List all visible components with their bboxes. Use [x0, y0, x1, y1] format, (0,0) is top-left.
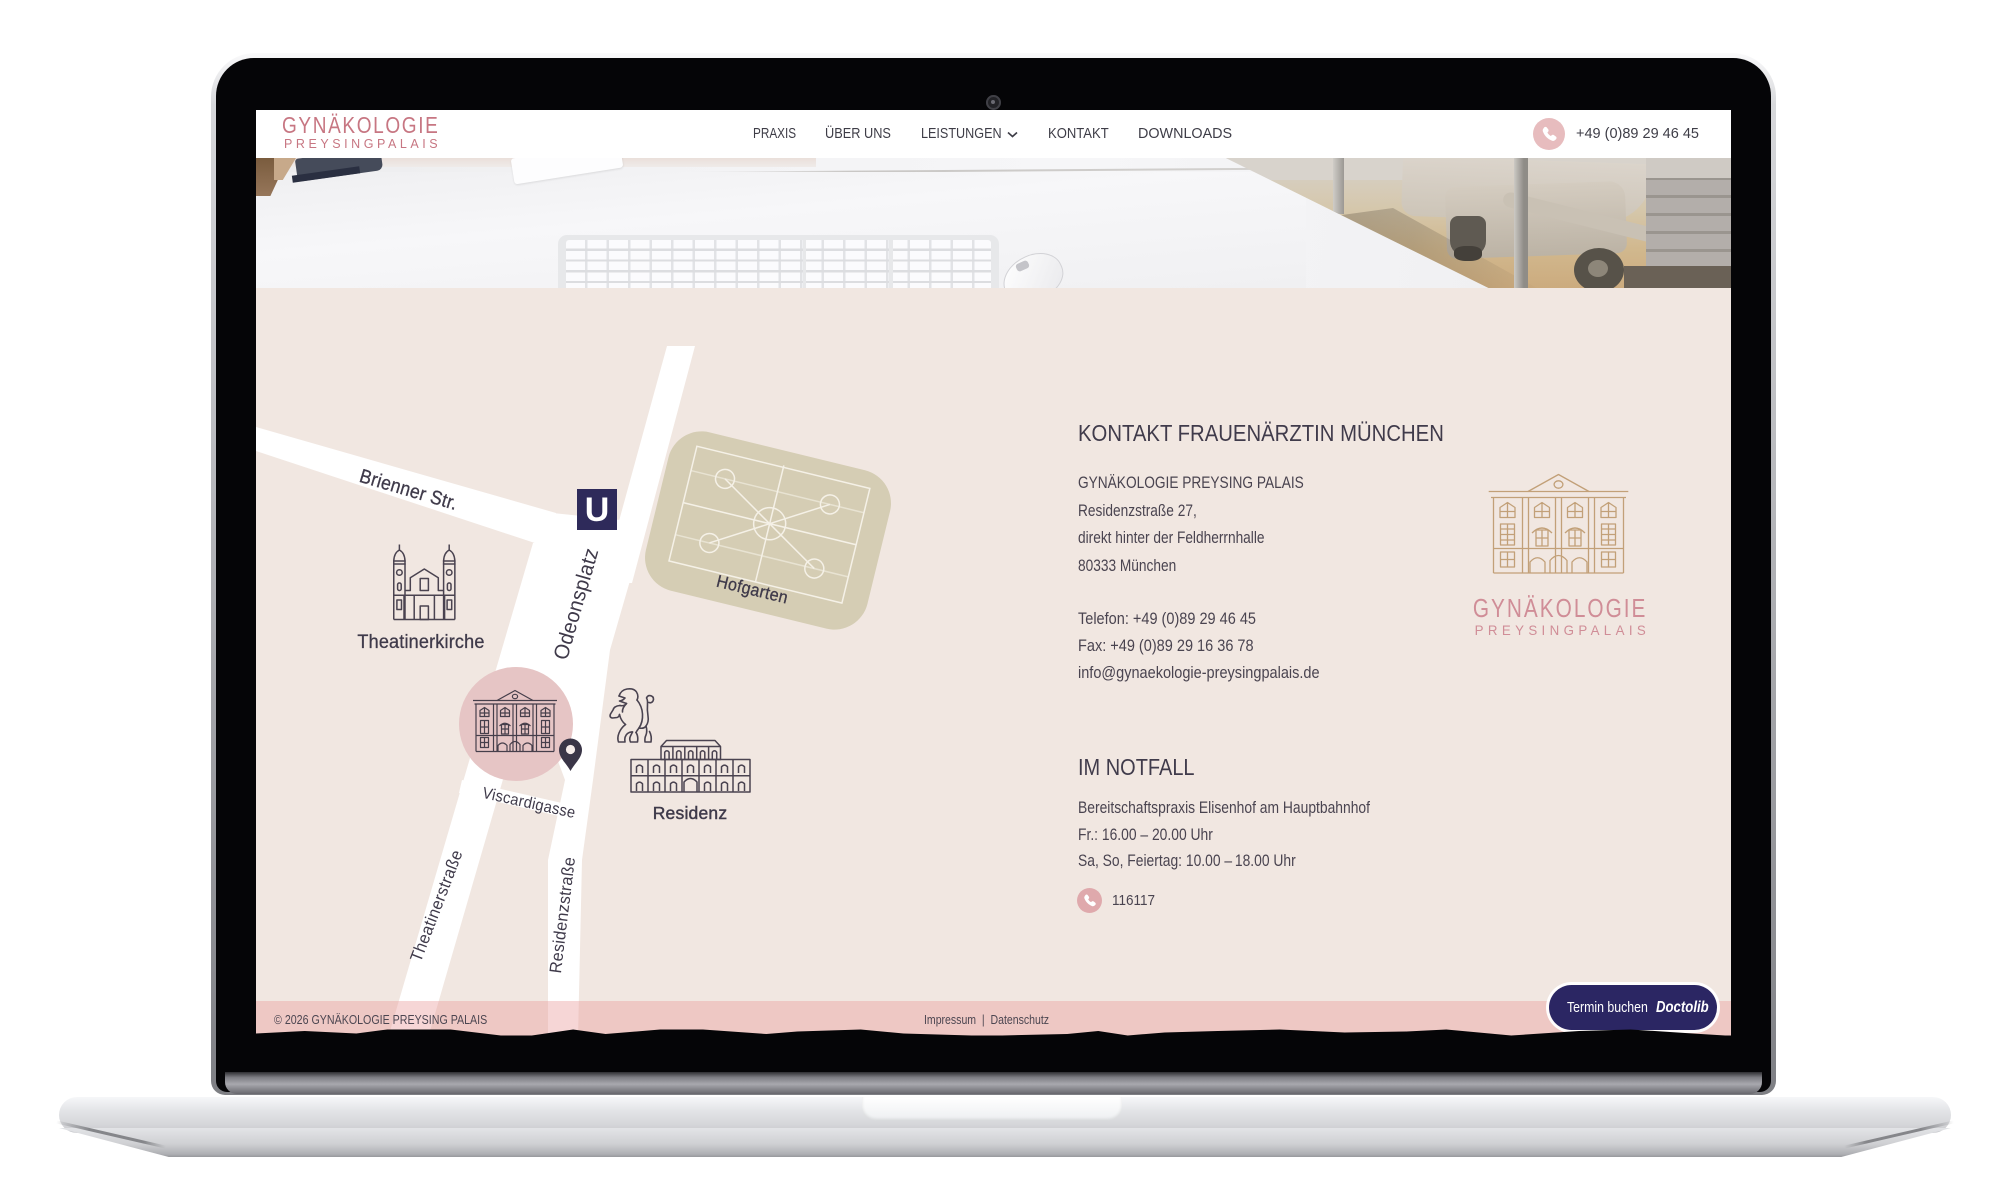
svg-text:Residenz: Residenz: [653, 803, 728, 823]
svg-text:Theatinerkirche: Theatinerkirche: [357, 631, 484, 653]
svg-text:Viscardigasse: Viscardigasse: [481, 784, 577, 822]
svg-text:U: U: [585, 491, 610, 529]
